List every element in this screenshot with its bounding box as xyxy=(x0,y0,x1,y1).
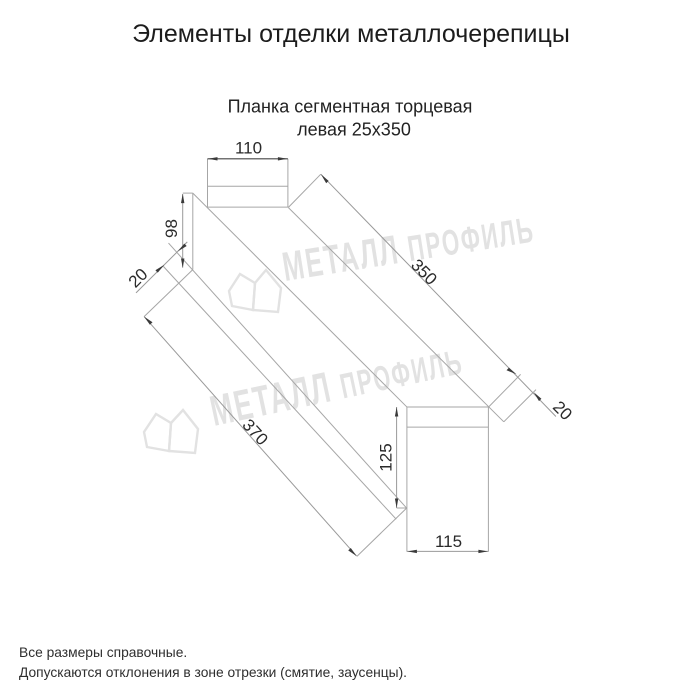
svg-text:110: 110 xyxy=(235,139,262,158)
svg-text:125: 125 xyxy=(377,443,396,471)
svg-text:Элементы отделки металлочерепи: Элементы отделки металлочерепицы xyxy=(132,20,570,48)
svg-text:левая 25х350: левая 25х350 xyxy=(297,120,411,140)
svg-text:Все размеры справочные.: Все размеры справочные. xyxy=(19,645,187,660)
svg-text:115: 115 xyxy=(435,532,462,551)
svg-text:Допускаются отклонения в зоне: Допускаются отклонения в зоне отрезки (с… xyxy=(19,665,407,680)
svg-text:Планка сегментная торцевая: Планка сегментная торцевая xyxy=(228,97,473,117)
svg-text:98: 98 xyxy=(162,219,181,238)
